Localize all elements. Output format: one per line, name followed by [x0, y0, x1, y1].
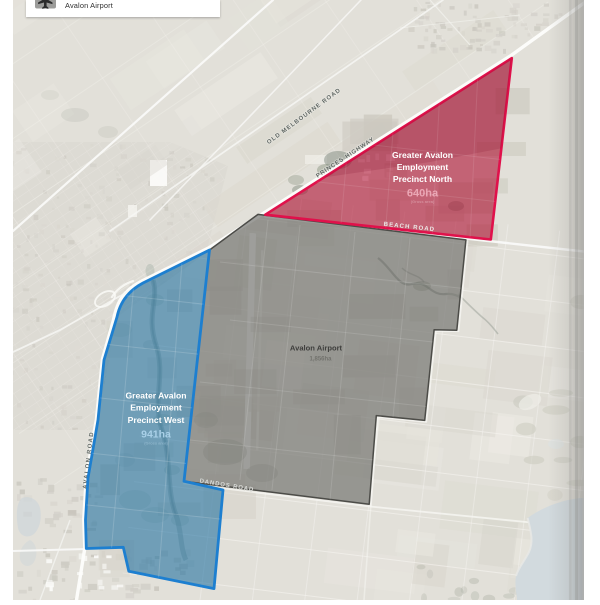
svg-text:Greater Avalon: Greater Avalon: [126, 391, 187, 401]
svg-text:Employment: Employment: [397, 162, 449, 172]
svg-text:(Gross area): (Gross area): [144, 441, 168, 446]
svg-text:Precinct West: Precinct West: [128, 415, 185, 425]
svg-text:941ha: 941ha: [141, 429, 171, 441]
svg-text:Employment: Employment: [130, 403, 182, 413]
svg-text:Avalon Airport: Avalon Airport: [290, 344, 343, 353]
svg-text:(Gross area): (Gross area): [411, 199, 435, 204]
svg-text:Precinct North: Precinct North: [393, 174, 452, 184]
svg-text:1,856ha: 1,856ha: [309, 357, 332, 363]
svg-text:Greater Avalon: Greater Avalon: [392, 150, 453, 160]
